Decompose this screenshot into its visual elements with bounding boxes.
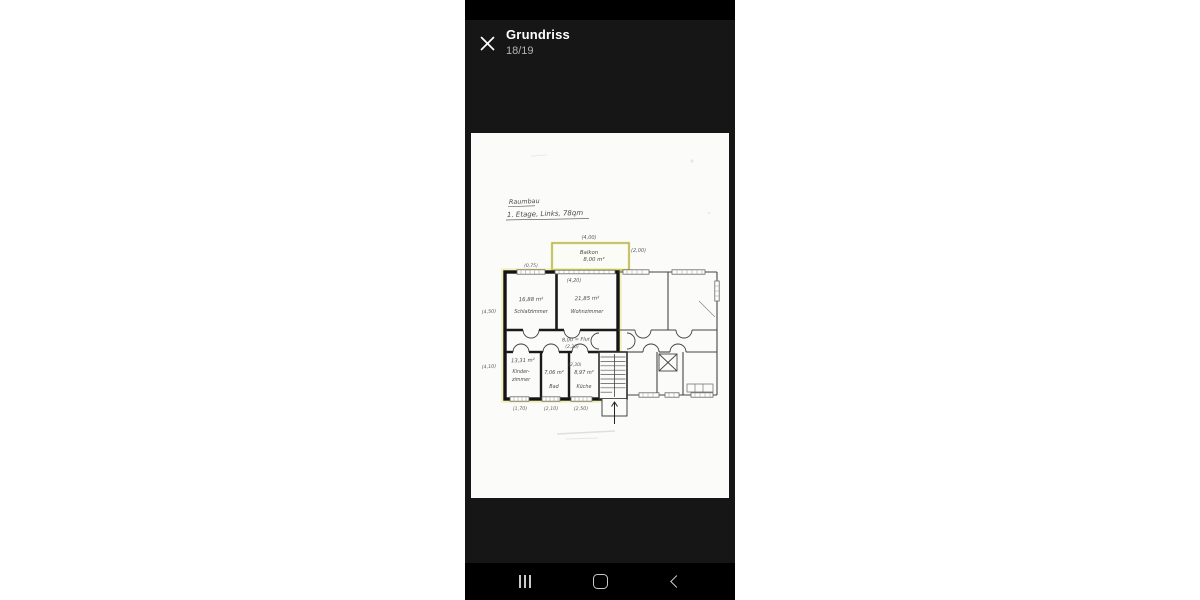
flur-label: 8,00 = Flur: [562, 336, 591, 343]
page-title: Grundriss: [506, 27, 570, 43]
status-bar: [465, 0, 735, 20]
balcony-area: 8,00 m²: [583, 256, 605, 263]
dim-under-balcony: (4,20): [567, 278, 582, 284]
kinderzimmer-name1: Kinder-: [513, 369, 530, 375]
home-icon: [593, 574, 608, 589]
note-line1: Raumbau: [509, 197, 540, 206]
kueche-dim: (2,30): [568, 362, 581, 368]
dim-bottom-mid: (2,10): [544, 406, 559, 413]
wohnzimmer-name: Wohnzimmer: [571, 309, 604, 315]
bad-name: Bad: [549, 384, 559, 390]
dim-top-window: (0,75): [524, 263, 538, 269]
balcony-name: Balkon: [580, 250, 599, 256]
dim-bottom-right: (2,50): [574, 406, 589, 413]
dim-left-lower: (4,10): [482, 363, 497, 370]
system-navbar: [465, 563, 735, 600]
paper-background: [471, 133, 729, 498]
flur-dim: (2,20): [565, 344, 579, 350]
dim-bottom-left: (1,70): [513, 406, 528, 413]
schlafzimmer-name: Schlafzimmer: [514, 309, 548, 315]
floorplan-sketch: Raumbau 1. Etage, Links, 78qm Balkon 8,0…: [471, 133, 729, 498]
dim-left-upper: (4,50): [482, 308, 497, 315]
schlafzimmer-area: 16,88 m²: [519, 296, 545, 303]
kinderzimmer-area: 13,31 m²: [511, 358, 535, 365]
bad-area: 7,06 m²: [544, 370, 564, 376]
close-icon: [480, 36, 495, 51]
kueche-name: Küche: [577, 384, 592, 390]
kueche-area: 8,97 m²: [574, 370, 594, 376]
recents-icon: [519, 575, 531, 588]
back-icon: [670, 575, 683, 588]
floorplan-image[interactable]: Raumbau 1. Etage, Links, 78qm Balkon 8,0…: [471, 133, 729, 498]
back-button[interactable]: [661, 568, 689, 596]
dim-balcony-top: (4,00): [581, 235, 596, 241]
kinderzimmer-name2: zimmer: [511, 377, 531, 383]
dim-balcony-right: (2,00): [631, 248, 646, 254]
home-button[interactable]: [586, 568, 614, 596]
phone-screenshot: Grundriss 18/19 Raumbau 1. Etage, Links,…: [465, 0, 735, 600]
close-button[interactable]: [476, 32, 498, 54]
viewer-header: Grundriss 18/19: [465, 20, 735, 76]
wohnzimmer-area: 21,85 m²: [575, 295, 601, 302]
image-counter: 18/19: [506, 44, 570, 59]
recents-button[interactable]: [511, 568, 539, 596]
